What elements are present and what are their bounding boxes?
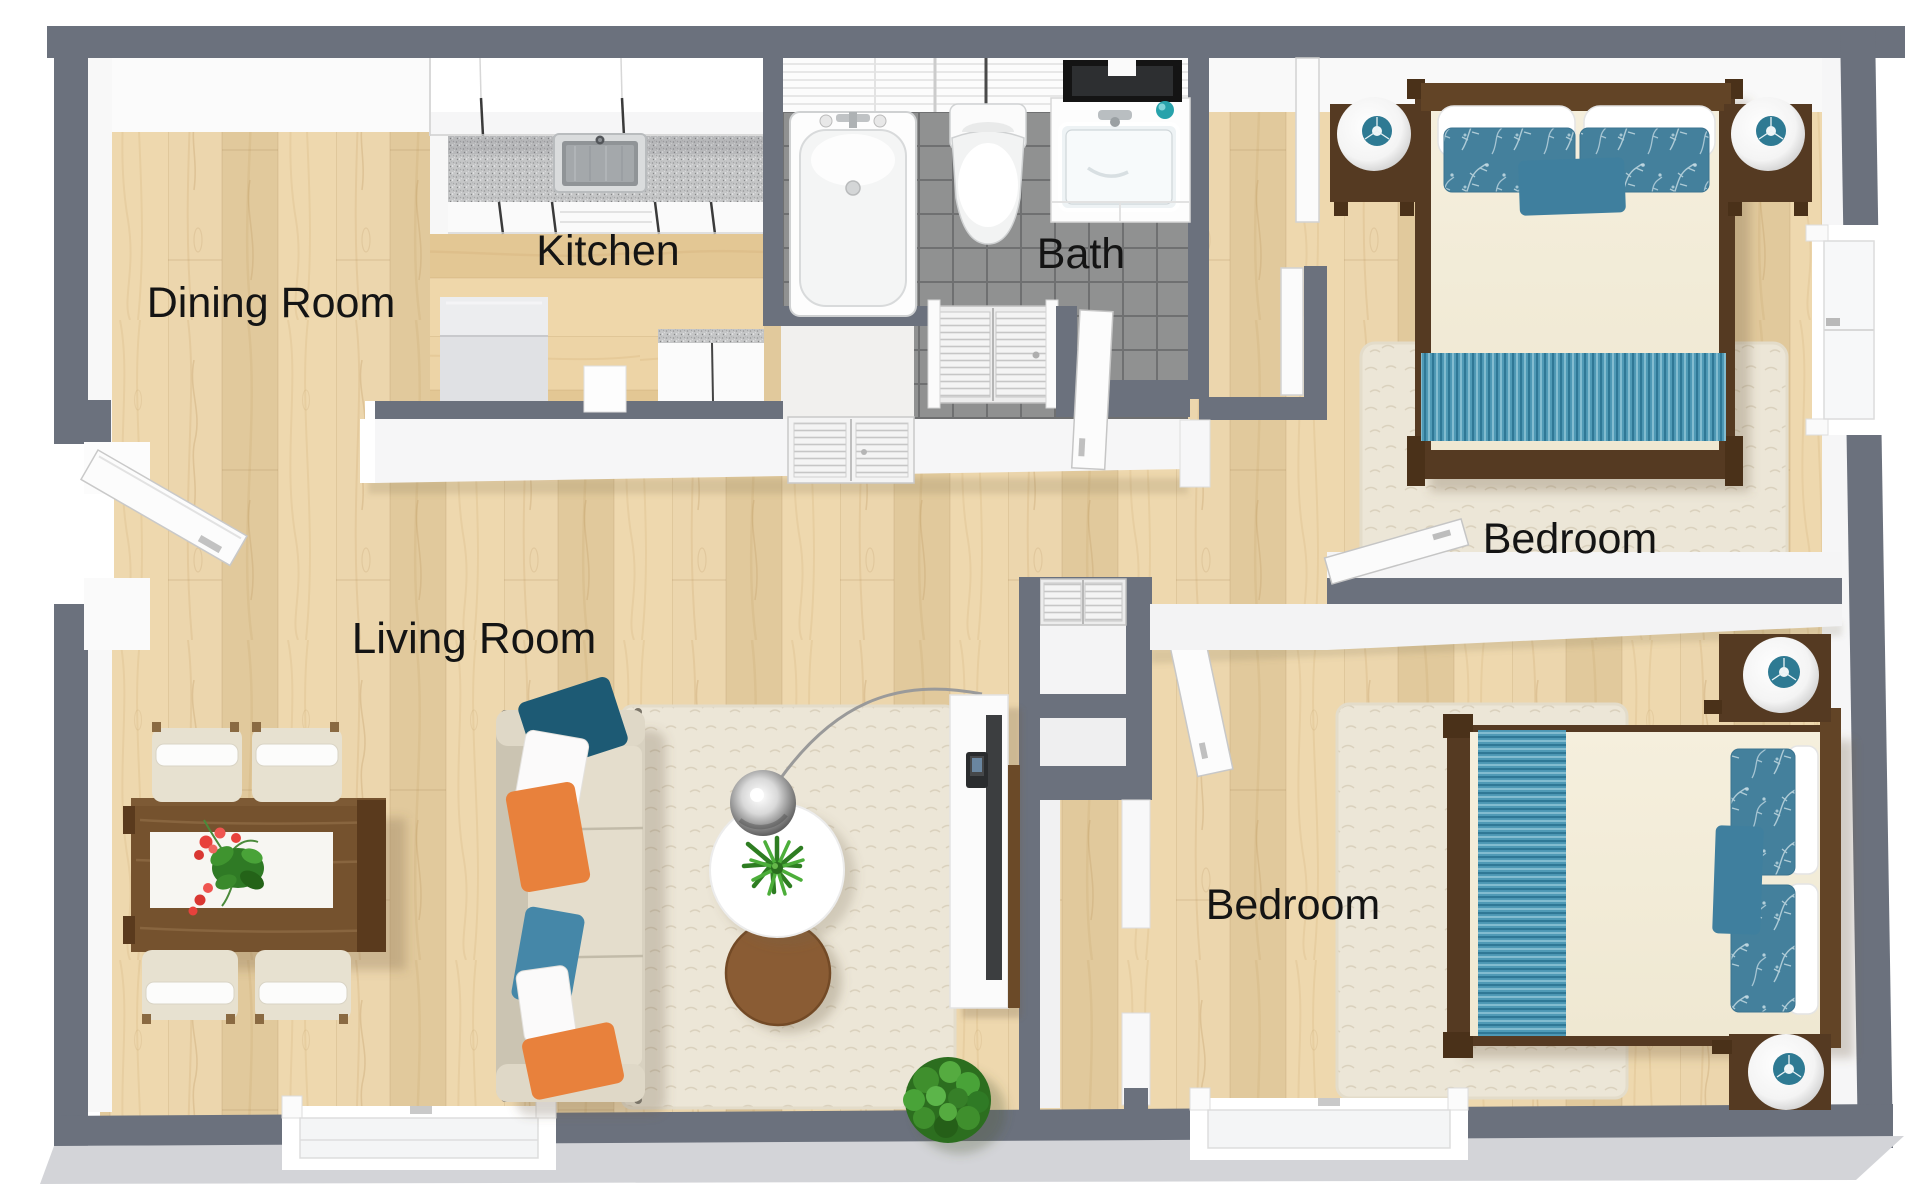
svg-text:Living Room: Living Room [352, 614, 597, 663]
svg-text:Bath: Bath [1037, 230, 1125, 278]
svg-text:Kitchen: Kitchen [536, 227, 679, 275]
svg-text:Bedroom: Bedroom [1206, 881, 1380, 929]
svg-text:Bedroom: Bedroom [1483, 515, 1657, 563]
svg-text:Dining Room: Dining Room [147, 279, 396, 327]
